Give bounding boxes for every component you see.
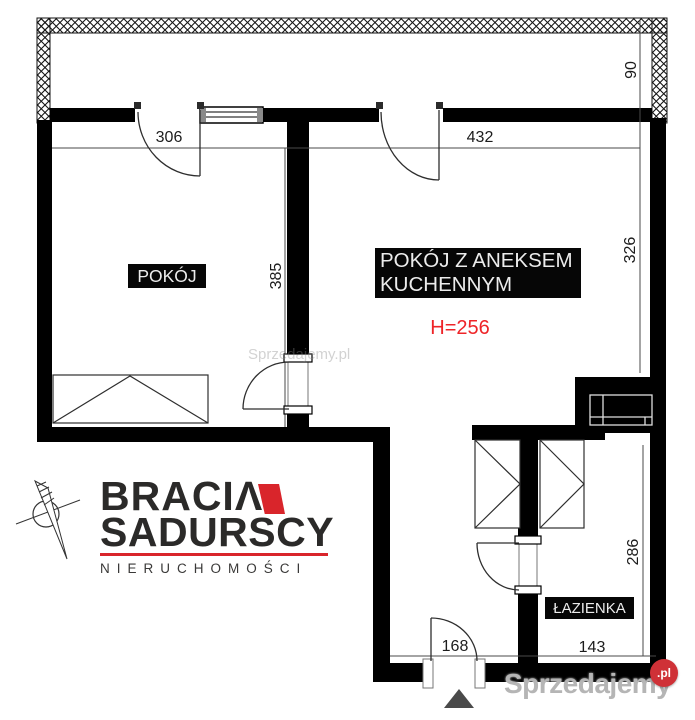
wall-left	[37, 120, 52, 442]
room-label-kitchen-line1: POKÓJ Z ANEKSEM	[380, 249, 573, 273]
wall-hall-left	[373, 442, 390, 682]
agency-logo-underline	[100, 553, 328, 556]
dim-kitchen-width: 432	[455, 130, 505, 146]
dim-entry-width: 168	[430, 639, 480, 655]
wall-top-c	[443, 108, 652, 122]
site-watermark: Sprzedajemy	[504, 668, 671, 700]
room-label-kitchen: POKÓJ Z ANEKSEM KUCHENNYM	[375, 248, 581, 298]
site-watermark-pl-badge: .pl	[650, 659, 678, 687]
wall-top-b	[263, 108, 379, 122]
dim-kitchen-height: 326	[623, 230, 639, 270]
dim-pokoj-width: 306	[144, 130, 194, 146]
dim-balcony-depth: 90	[624, 50, 640, 90]
faint-watermark: Sprzedajemy.pl	[248, 346, 350, 363]
room-label-pokoj: POKÓJ	[128, 264, 206, 288]
dim-pokoj-height: 385	[269, 256, 285, 296]
room-label-bathroom: ŁAZIENKA	[545, 597, 634, 619]
wall-middle-upper	[287, 122, 309, 358]
wall-pokoj-bottom	[37, 427, 390, 442]
wall-bottom-a	[373, 663, 430, 682]
balcony-hatch	[37, 18, 667, 123]
balcony-door-kitchen	[381, 110, 439, 180]
wardrobe-symbol-bath	[540, 440, 584, 528]
bathroom-door	[477, 536, 541, 594]
bed-symbol	[53, 375, 208, 423]
wardrobe-symbol-hall	[475, 440, 520, 528]
agency-tagline: NIERUCHOMOŚCI	[100, 561, 307, 576]
floorplan-canvas: 306 432 90 326 385 286 143 168 POKÓJ POK…	[0, 0, 695, 720]
dim-bathroom-width: 143	[567, 640, 617, 656]
compass-icon	[16, 481, 80, 559]
wall-bath-upper	[518, 440, 538, 543]
dim-hall-height: 286	[626, 532, 642, 572]
agency-name-line2: SADURSCY	[100, 513, 334, 551]
wall-top-a	[50, 108, 135, 122]
ceiling-height-note: H=256	[420, 317, 500, 340]
entrance-arrow	[444, 689, 474, 708]
pokoj-door	[243, 354, 312, 414]
balcony-window	[200, 107, 263, 123]
room-label-kitchen-line2: KUCHENNYM	[380, 273, 512, 297]
door-jambs-top	[134, 102, 443, 109]
